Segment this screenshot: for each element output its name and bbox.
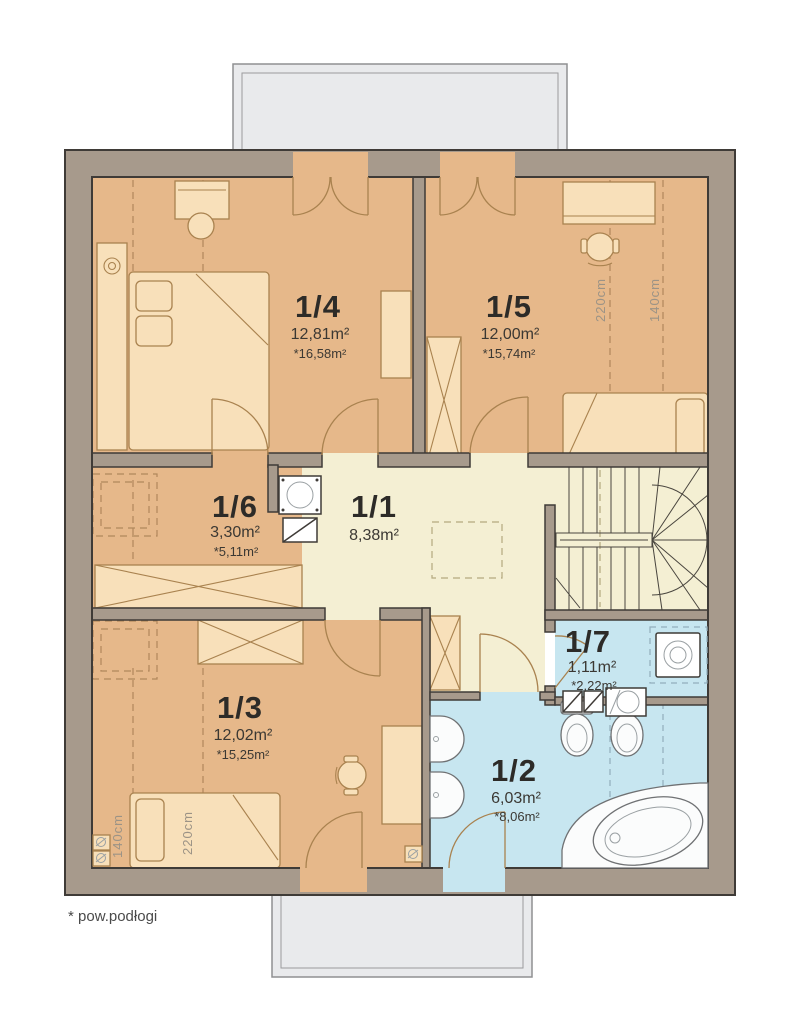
pillow: [136, 316, 172, 346]
pillow: [136, 799, 164, 861]
floor-plan-page: 1/4 12,81m² *16,58m² 1/5 12,00m² *15,74m…: [0, 0, 800, 1020]
washing-machine: [656, 633, 700, 677]
laundry-fixtures: [650, 627, 707, 683]
boiler: [279, 476, 321, 542]
room-1-1-number: 1/1: [351, 489, 397, 524]
room-1-2-floor-area: *8,06m²: [494, 809, 540, 824]
closet-1-6-furniture: [95, 565, 302, 608]
room-1-5-number: 1/5: [486, 289, 532, 324]
dim-220cm: 220cm: [180, 811, 195, 855]
dim-140cm: 140cm: [647, 278, 662, 322]
desk: [563, 182, 655, 224]
room-1-6-floor-area: *5,11m²: [214, 544, 259, 559]
room-1-7-number: 1/7: [565, 624, 611, 659]
balcony-top: [233, 64, 567, 161]
corridor-wardrobe: [430, 616, 460, 690]
room-1-5-floor-area: *15,74m²: [483, 346, 536, 361]
room-1-2-number: 1/2: [491, 753, 537, 788]
room-1-4-floor-area: *16,58m²: [294, 346, 347, 361]
room-1-4-number: 1/4: [295, 289, 341, 324]
room-1-4-area: 12,81m²: [291, 326, 350, 343]
desk: [382, 726, 422, 824]
floor-plan: 1/4 12,81m² *16,58m² 1/5 12,00m² *15,74m…: [0, 0, 800, 1020]
stool: [188, 213, 214, 239]
cabinet: [381, 291, 411, 378]
room-1-3-floor-area: *15,25m²: [217, 747, 270, 762]
room-1-5-area: 12,00m²: [481, 326, 540, 343]
legend-caption: * pow.podłogi: [68, 908, 157, 925]
room-1-1-area: 8,38m²: [349, 527, 399, 544]
closet-niche-wall: [268, 465, 278, 512]
desk-chair: [338, 761, 366, 789]
pillow: [676, 399, 704, 457]
room-1-6-number: 1/6: [212, 489, 258, 524]
room-1-3-number: 1/3: [217, 690, 263, 725]
room-1-2-area: 6,03m²: [491, 790, 541, 807]
room-1-7-area: 1,11m²: [568, 659, 617, 676]
pillow: [136, 281, 172, 311]
dim-140cm: 140cm: [110, 814, 125, 858]
room-1-7-floor-area: *2,22m²: [571, 678, 617, 693]
room-1-3-area: 12,02m²: [214, 727, 273, 744]
room-1-6-area: 3,30m²: [210, 524, 260, 541]
desk-chair: [586, 233, 614, 261]
dim-220cm: 220cm: [593, 278, 608, 322]
